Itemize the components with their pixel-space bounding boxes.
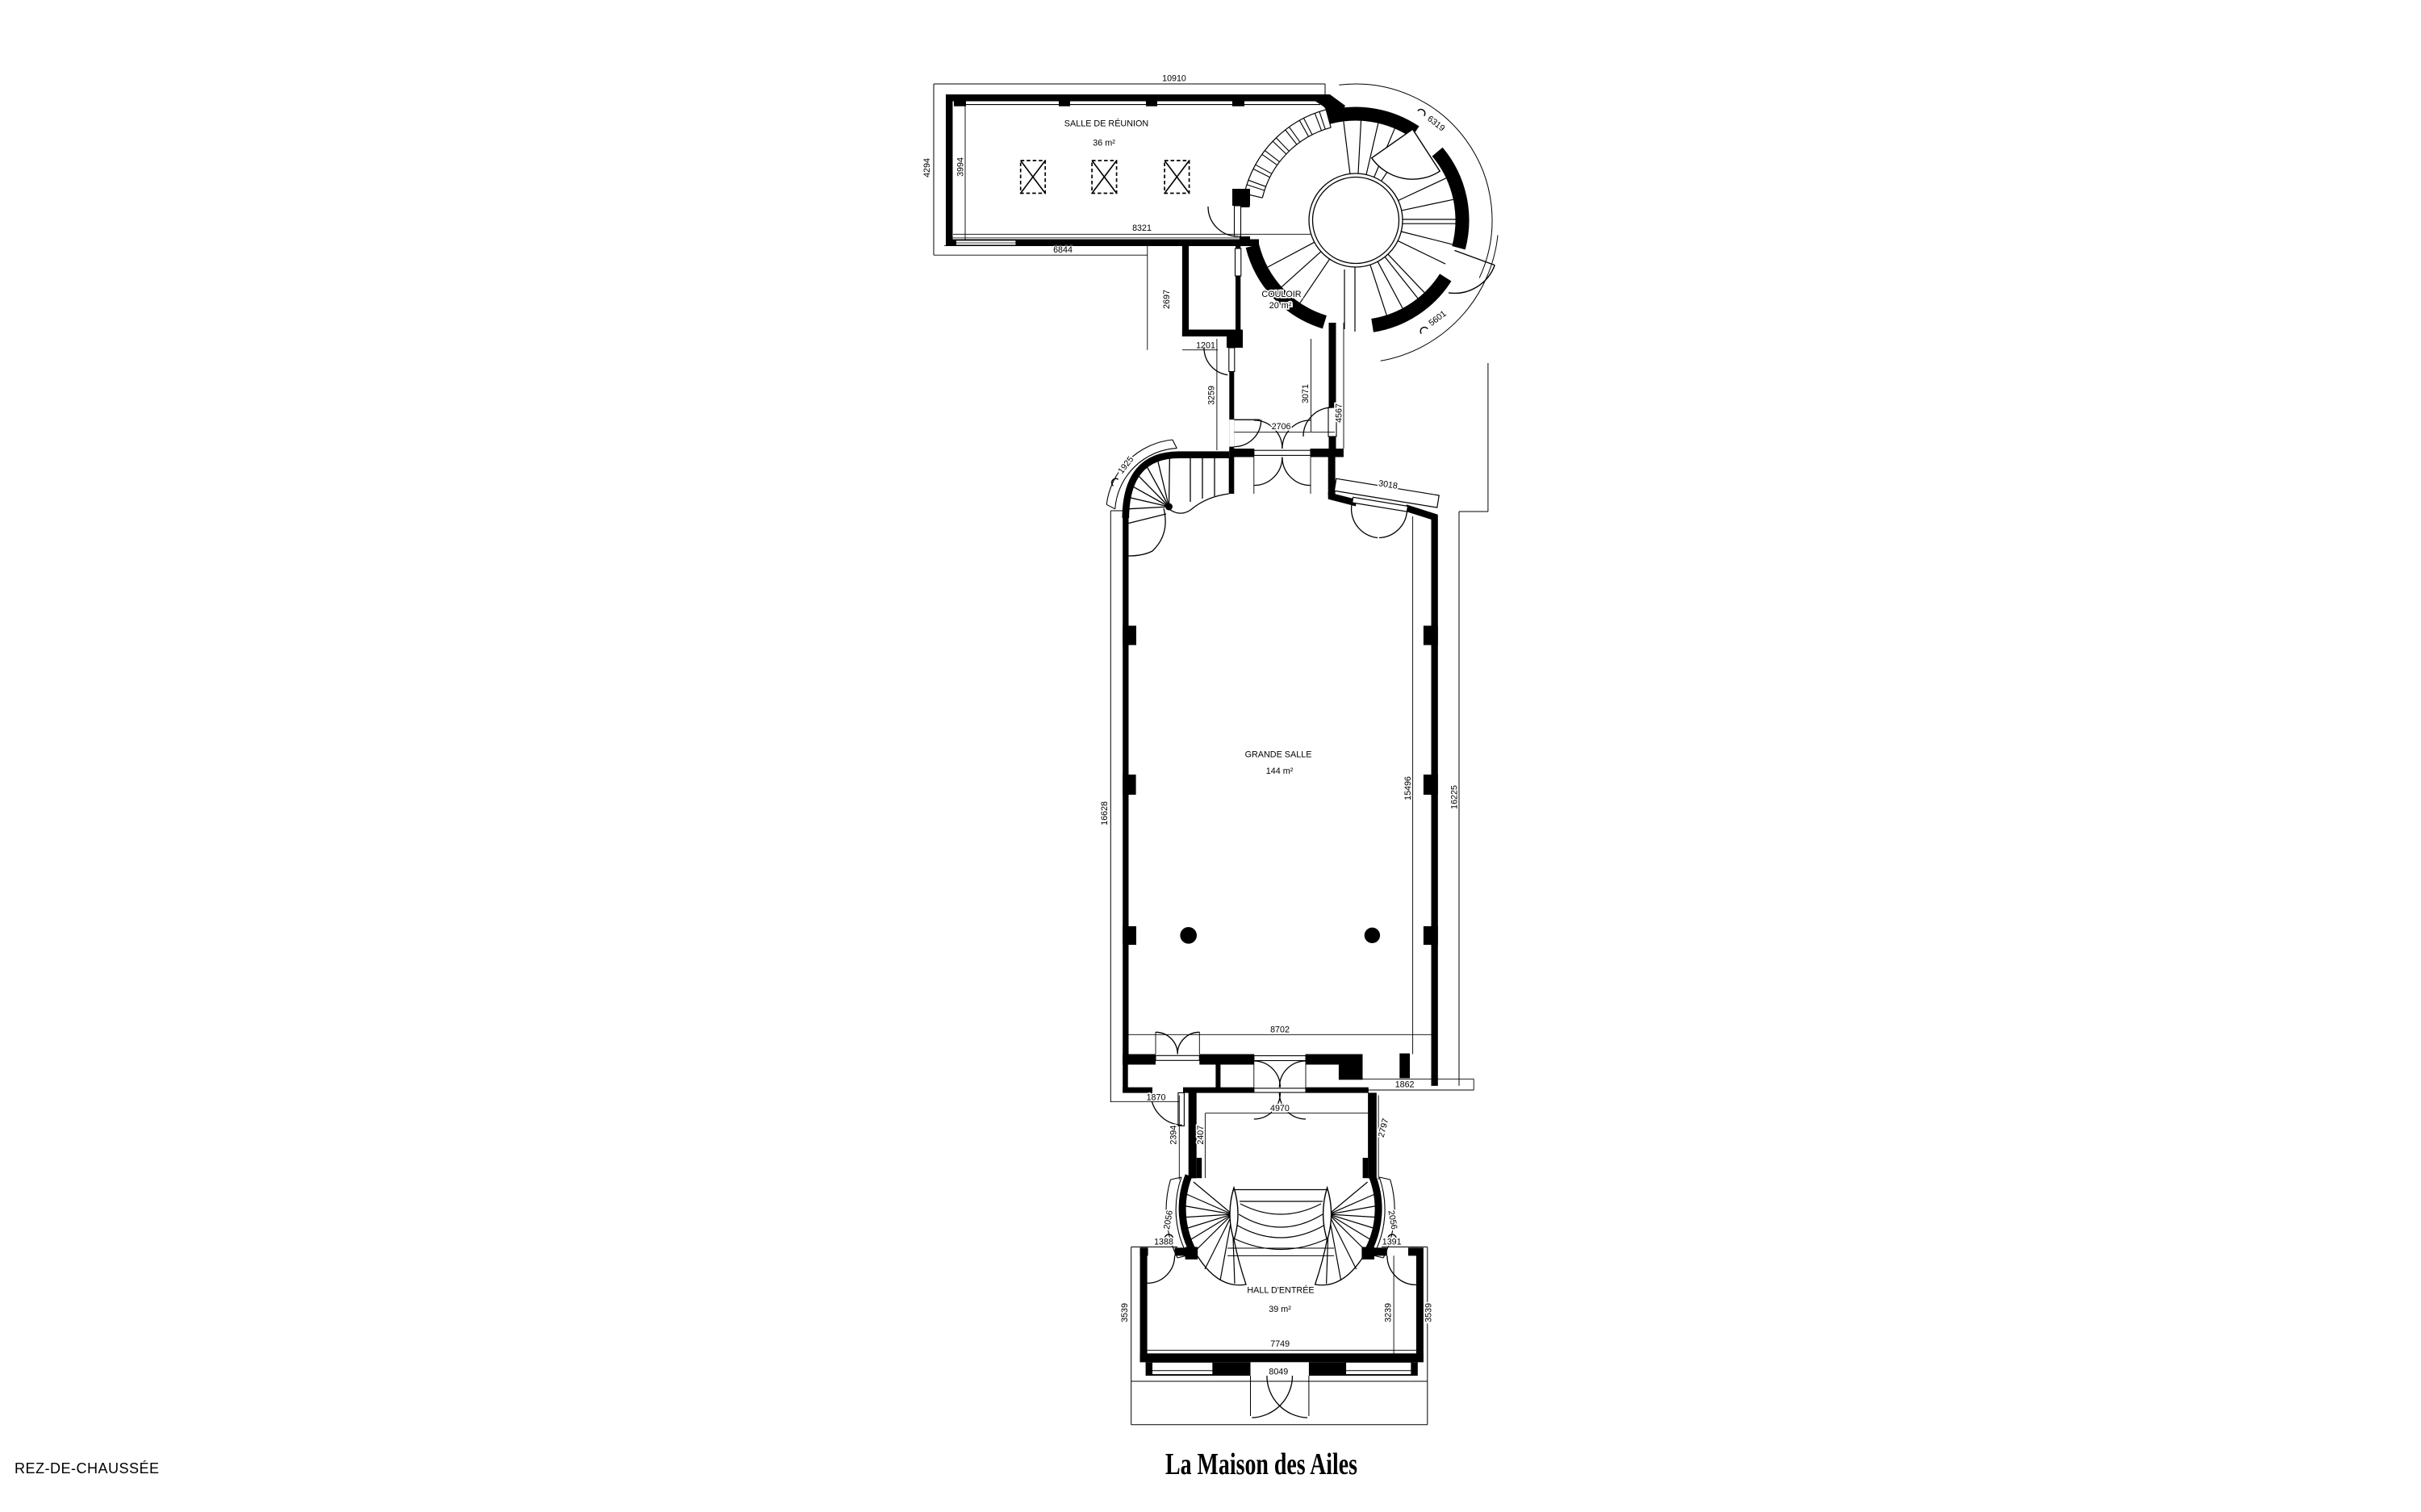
svg-text:16628: 16628 [1100, 801, 1110, 825]
svg-text:3259: 3259 [1207, 386, 1217, 405]
svg-text:3539: 3539 [1120, 1303, 1130, 1322]
svg-text:1391: 1391 [1382, 1238, 1402, 1247]
svg-text:4567: 4567 [1335, 403, 1344, 423]
svg-text:8702: 8702 [1270, 1025, 1290, 1035]
svg-text:1388: 1388 [1154, 1238, 1173, 1247]
svg-text:4294: 4294 [922, 158, 932, 178]
svg-text:8321: 8321 [1132, 223, 1152, 233]
svg-text:10910: 10910 [1162, 74, 1186, 84]
svg-text:6844: 6844 [1053, 245, 1073, 255]
svg-text:1870: 1870 [1147, 1093, 1166, 1103]
svg-text:SALLE DE RÉUNION: SALLE DE RÉUNION [1064, 119, 1148, 129]
svg-text:3071: 3071 [1301, 384, 1311, 403]
svg-text:GRANDE SALLE: GRANDE SALLE [1245, 750, 1312, 760]
svg-text:36 m²: 36 m² [1093, 139, 1115, 148]
svg-text:20 m²: 20 m² [1269, 301, 1292, 311]
svg-text:4970: 4970 [1270, 1104, 1290, 1113]
svg-text:1201: 1201 [1196, 341, 1215, 351]
svg-text:2697: 2697 [1162, 290, 1172, 309]
svg-text:8049: 8049 [1269, 1368, 1288, 1377]
svg-text:39 m²: 39 m² [1269, 1305, 1291, 1314]
svg-text:2407: 2407 [1196, 1126, 1206, 1145]
svg-text:3994: 3994 [956, 157, 966, 177]
svg-text:HALL D'ENTRÉE: HALL D'ENTRÉE [1247, 1285, 1314, 1296]
svg-text:15496: 15496 [1403, 776, 1413, 800]
svg-text:2706: 2706 [1272, 422, 1291, 432]
svg-text:La Maison des Ailes: La Maison des Ailes [1165, 1447, 1357, 1481]
svg-text:16225: 16225 [1449, 785, 1459, 809]
svg-text:3539: 3539 [1424, 1303, 1434, 1322]
svg-text:REZ-DE-CHAUSSÉE: REZ-DE-CHAUSSÉE [15, 1460, 160, 1476]
svg-text:3239: 3239 [1384, 1303, 1394, 1322]
svg-text:1862: 1862 [1395, 1080, 1415, 1090]
svg-text:COULOIR: COULOIR [1261, 290, 1301, 299]
svg-text:7749: 7749 [1270, 1339, 1290, 1349]
svg-text:2394: 2394 [1169, 1126, 1179, 1145]
svg-text:144 m²: 144 m² [1266, 766, 1294, 776]
